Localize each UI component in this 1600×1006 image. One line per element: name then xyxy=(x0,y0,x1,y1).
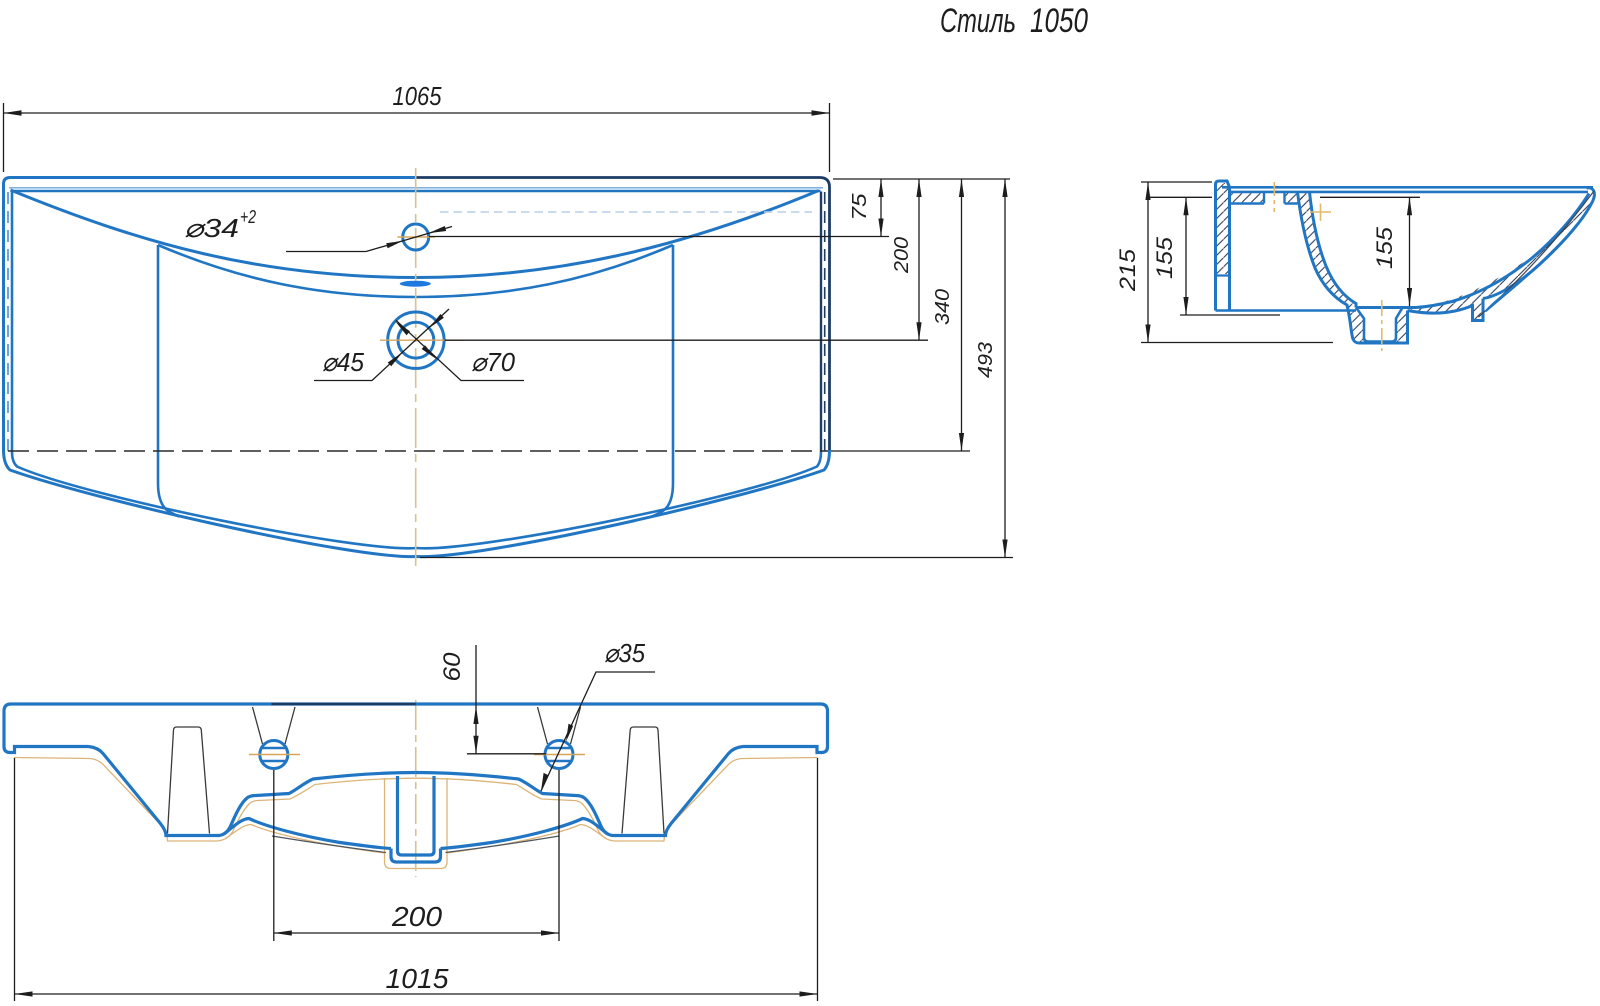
svg-text:⌀70: ⌀70 xyxy=(471,347,516,377)
svg-text:Стиль: Стиль xyxy=(940,2,1016,40)
svg-text:215: 215 xyxy=(1115,248,1140,292)
svg-text:75: 75 xyxy=(849,192,871,220)
svg-text:340: 340 xyxy=(932,289,954,325)
svg-text:⌀35: ⌀35 xyxy=(604,638,645,668)
svg-text:155: 155 xyxy=(1152,236,1177,279)
svg-text:1050: 1050 xyxy=(1030,2,1088,40)
svg-text:200: 200 xyxy=(891,237,913,274)
svg-text:⌀45: ⌀45 xyxy=(322,347,365,377)
svg-text:1065: 1065 xyxy=(393,81,442,111)
svg-text:60: 60 xyxy=(439,652,466,682)
svg-text:155: 155 xyxy=(1372,226,1397,269)
svg-text:⌀34: ⌀34 xyxy=(184,213,239,243)
svg-text:1015: 1015 xyxy=(386,963,449,994)
svg-text:493: 493 xyxy=(975,342,997,378)
svg-text:+2: +2 xyxy=(240,207,256,227)
svg-text:200: 200 xyxy=(391,901,443,932)
